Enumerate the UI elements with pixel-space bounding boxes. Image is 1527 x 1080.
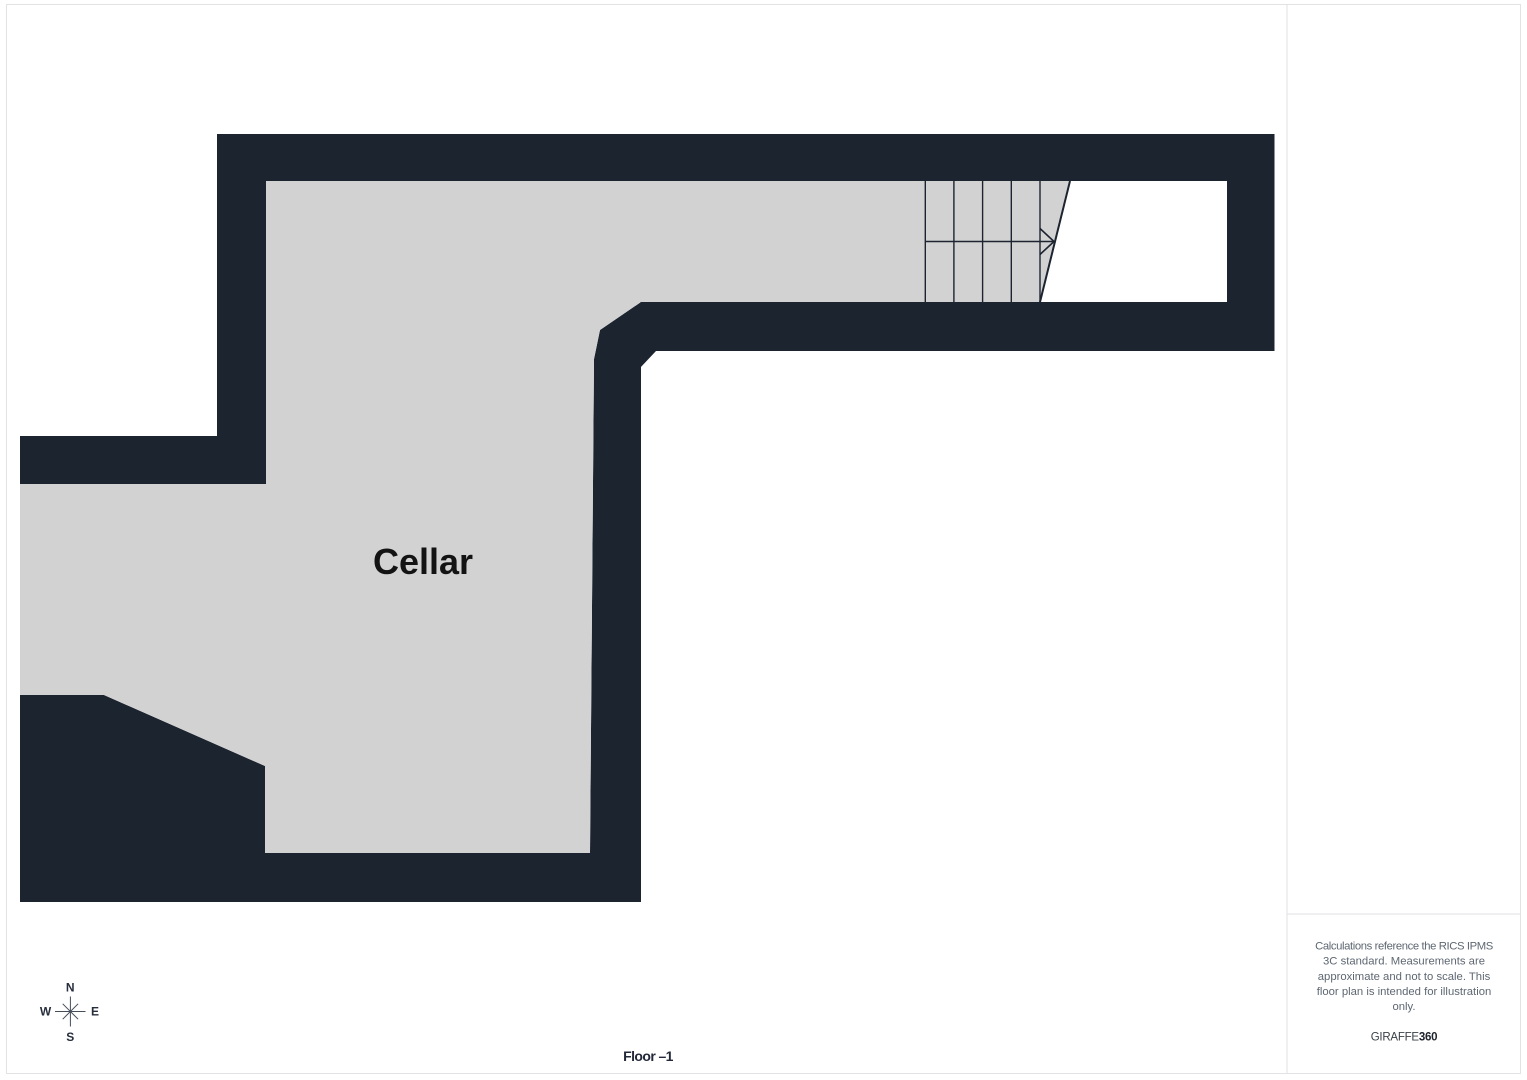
svg-text:Cellar: Cellar: [373, 541, 473, 582]
svg-text:3C standard. Measurements are: 3C standard. Measurements are: [1323, 956, 1485, 968]
svg-text:E: E: [91, 1005, 99, 1019]
svg-text:Calculations reference the RIC: Calculations reference the RICS IPMS: [1315, 941, 1494, 953]
svg-text:N: N: [66, 981, 75, 995]
svg-text:only.: only.: [1392, 1001, 1415, 1013]
svg-text:GIRAFFE360: GIRAFFE360: [1371, 1031, 1438, 1043]
svg-text:S: S: [66, 1030, 74, 1044]
svg-text:Floor –1: Floor –1: [623, 1048, 673, 1064]
svg-text:floor plan is intended for ill: floor plan is intended for illustration: [1317, 986, 1492, 998]
svg-text:W: W: [40, 1005, 52, 1019]
svg-text:approximate and not to scale.: approximate and not to scale. This: [1318, 971, 1491, 983]
